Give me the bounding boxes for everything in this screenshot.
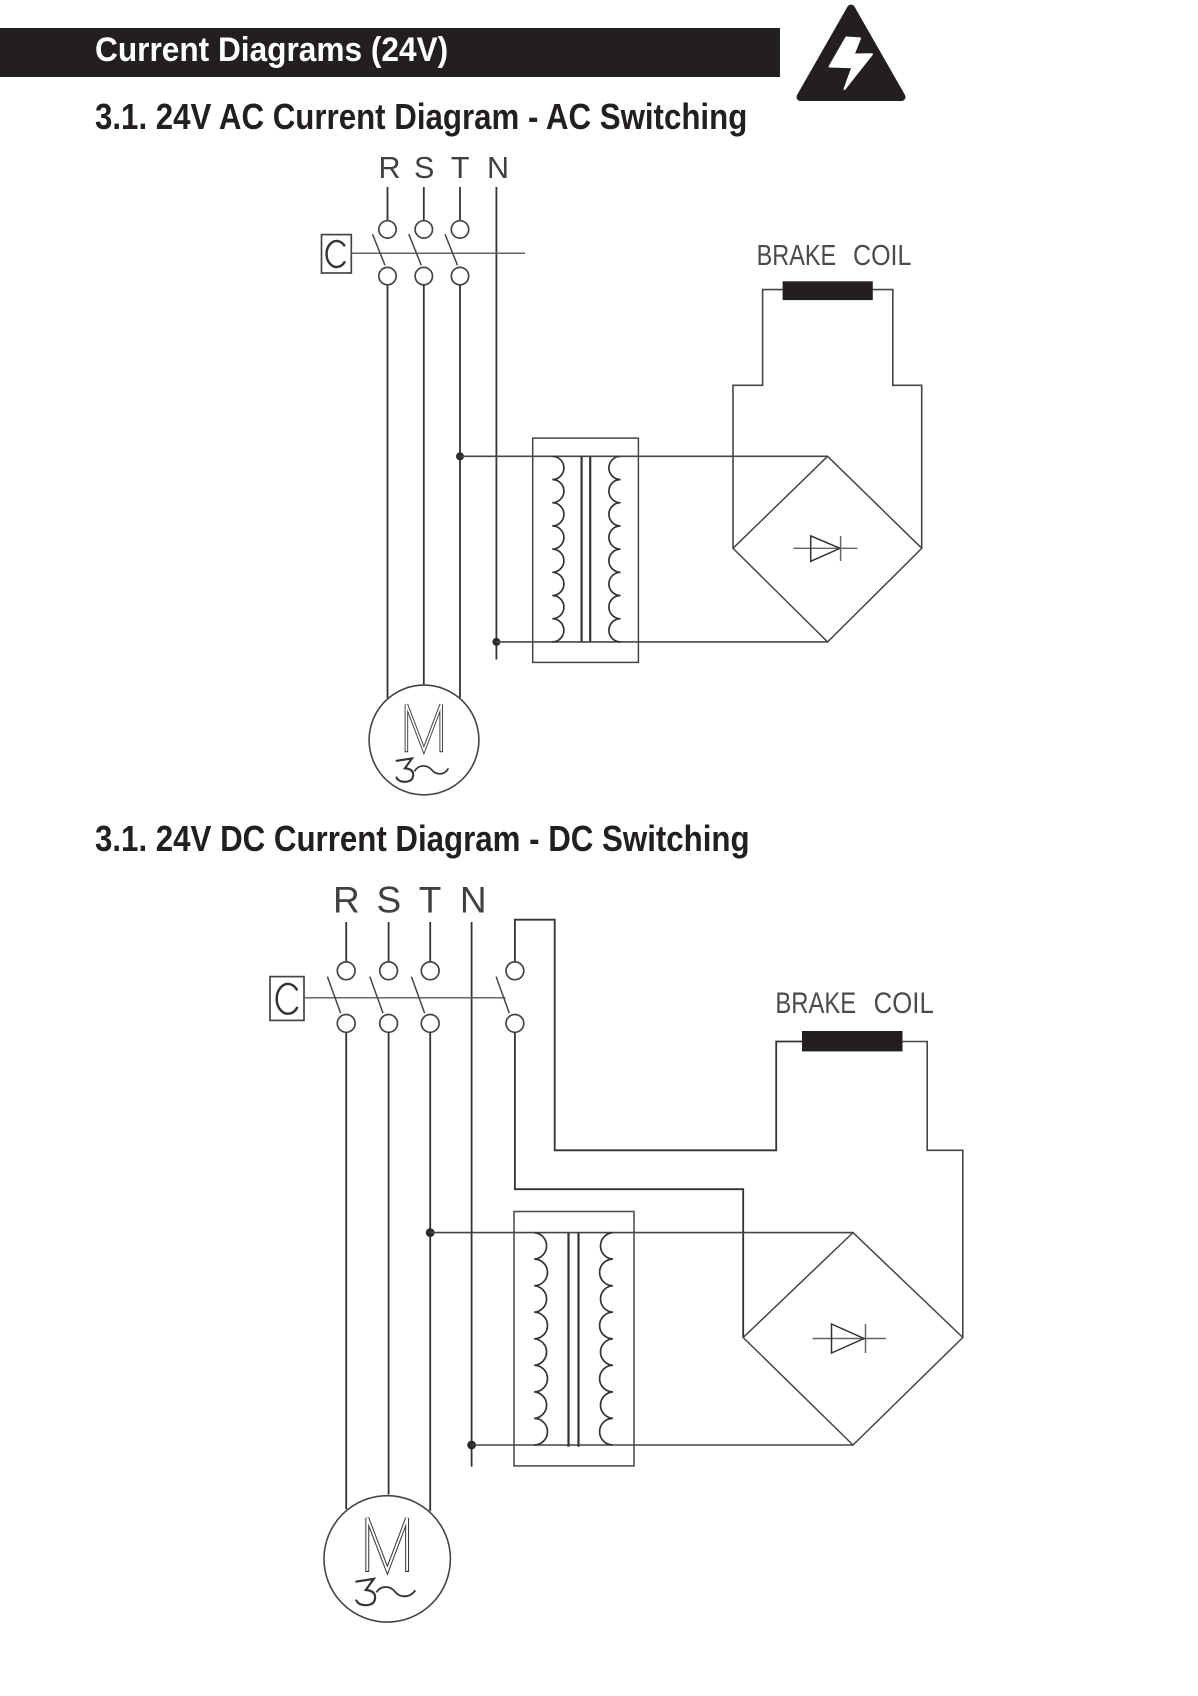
svg-text:COIL: COIL: [874, 987, 934, 1020]
svg-text:T: T: [419, 880, 442, 921]
svg-text:COIL: COIL: [853, 240, 911, 272]
svg-text:S: S: [414, 151, 434, 185]
svg-text:T: T: [451, 151, 470, 185]
svg-text:N: N: [460, 880, 487, 921]
svg-text:R: R: [333, 880, 360, 921]
svg-text:S: S: [376, 880, 401, 921]
svg-text:N: N: [487, 151, 509, 185]
svg-text:R: R: [378, 151, 400, 185]
svg-text:BRAKE: BRAKE: [775, 987, 856, 1020]
svg-text:BRAKE: BRAKE: [757, 240, 837, 272]
